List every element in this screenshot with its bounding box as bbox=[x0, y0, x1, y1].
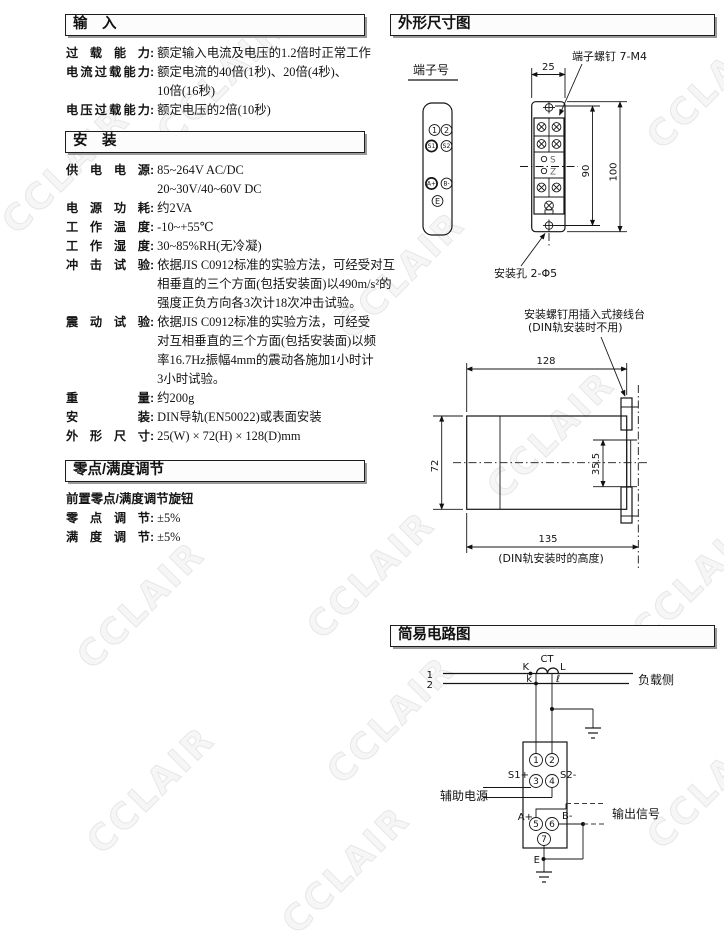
section-title: 输 入 bbox=[73, 16, 117, 32]
spec-value: 约2VA bbox=[157, 199, 192, 218]
terminal-2: 2 bbox=[444, 126, 449, 135]
spec-row-current-overload: 电流过载能力:额定电流的40倍(1秒)、20倍(4秒)、 10倍(16秒) bbox=[66, 63, 365, 101]
section-header-circuit: 简易电路图 bbox=[390, 625, 715, 647]
terminal-circle-3: 3 bbox=[533, 777, 539, 787]
din-height-note: (DIN轨安装时的高度) bbox=[498, 551, 604, 565]
spec-value: 依据JIS C0912标准的实验方法，可经受 对互相垂直的三个方面(包括安装面)… bbox=[157, 313, 376, 389]
terminal-s2: S2 bbox=[443, 143, 451, 150]
colon: : bbox=[150, 389, 154, 408]
spec-value: 25(W) × 72(H) × 128(D)mm bbox=[157, 427, 300, 446]
transducer-terminals: 1 2 3 4 5 6 7 bbox=[530, 754, 559, 846]
spec-row-vibration-test: 震动试验:依据JIS C0912标准的实验方法，可经受 对互相垂直的三个方面(包… bbox=[66, 313, 365, 389]
s1-plus-label: S1+ bbox=[508, 770, 529, 781]
terminal-circle-2: 2 bbox=[549, 756, 555, 766]
spec-value: 85~264V AC/DC 20~30V/40~60V DC bbox=[157, 161, 261, 199]
input-spec-list: 过载能力:额定输入电流及电压的1.2倍时正常工作 电流过载能力:额定电流的40倍… bbox=[66, 44, 365, 120]
adjust-spec-list: 前置零点/满度调节旋钮 零点调节:±5% 满度调节:±5% bbox=[66, 490, 365, 547]
ct-K-label: K bbox=[522, 662, 529, 673]
spec-label: 工作温度 bbox=[66, 218, 150, 237]
spec-label: 电源功耗 bbox=[66, 199, 150, 218]
terminal-circle-7: 7 bbox=[541, 835, 547, 845]
spec-row-operating-humidity: 工作湿度:30~85%RH(无冷凝) bbox=[66, 237, 365, 256]
colon: : bbox=[150, 237, 154, 256]
e-ground-label: E bbox=[534, 855, 540, 866]
mounting-hole-note: 安装孔 2-Φ5 bbox=[494, 266, 557, 280]
side-view: 安装螺钉用插入式接线台 (DIN轨安装时不用) 128 35.5 72 135 … bbox=[430, 307, 648, 570]
terminal-e: E bbox=[435, 197, 440, 206]
zero-adjuster-label: Z bbox=[550, 168, 556, 178]
spec-value: -10~+55℃ bbox=[157, 218, 213, 237]
watermark: CCLAIR bbox=[79, 718, 223, 862]
section-header-input: 输 入 bbox=[65, 14, 365, 36]
front-view: 端子螺钉 7-M4 25 bbox=[494, 50, 647, 280]
spec-row-shock-test: 冲击试验:依据JIS C0912标准的实验方法，可经受对互 相垂直的三个方面(包… bbox=[66, 256, 365, 313]
spec-label: 供电电源 bbox=[66, 161, 150, 199]
a-plus-label: A+ bbox=[518, 812, 533, 823]
terminal-1: 1 bbox=[432, 126, 437, 135]
colon: : bbox=[150, 256, 154, 313]
terminal-a-plus: A+ bbox=[427, 181, 436, 188]
spec-row-span-adjust: 满度调节:±5% bbox=[66, 528, 365, 547]
load-side-label: 负载侧 bbox=[638, 673, 674, 687]
ct-l-label: ℓ bbox=[556, 674, 560, 685]
spec-label: 过载能力 bbox=[66, 44, 150, 63]
dim-width-25: 25 bbox=[542, 62, 555, 73]
spec-label: 工作湿度 bbox=[66, 237, 150, 256]
terminal-screw-icon bbox=[552, 140, 561, 149]
spec-row-outline-size: 外形尺寸:25(W) × 72(H) × 128(D)mm bbox=[66, 427, 365, 446]
section-title: 简易电路图 bbox=[398, 627, 471, 643]
colon: : bbox=[150, 509, 154, 528]
spec-label: 满度调节 bbox=[66, 528, 150, 547]
outline-dimension-diagram: 端子号 1 2 S1 S2 A+ B- E 端子螺钉 7-M4 25 bbox=[385, 42, 724, 632]
section-title: 外形尺寸图 bbox=[398, 16, 471, 32]
terminal-circle-4: 4 bbox=[549, 777, 555, 787]
colon: : bbox=[150, 63, 154, 101]
top-mounting-hole-icon bbox=[543, 102, 555, 114]
terminal-circle-6: 6 bbox=[549, 820, 555, 830]
terminal-s1: S1 bbox=[428, 143, 436, 150]
adjust-note: 前置零点/满度调节旋钮 bbox=[66, 490, 365, 509]
s2-minus-label: S2- bbox=[560, 770, 577, 781]
dim-rail-355: 35.5 bbox=[591, 453, 602, 475]
spec-row-voltage-overload: 电压过载能力:额定电压的2倍(10秒) bbox=[66, 101, 365, 120]
colon: : bbox=[150, 218, 154, 237]
bottom-mounting-hole-icon bbox=[543, 220, 555, 248]
current-transformer: K CT L k ℓ bbox=[522, 654, 566, 685]
colon: : bbox=[150, 199, 154, 218]
dim-height-72: 72 bbox=[430, 460, 441, 473]
install-spec-list: 供电电源:85~264V AC/DC 20~30V/40~60V DC 电源功耗… bbox=[66, 161, 365, 446]
spec-label: 重量 bbox=[66, 389, 150, 408]
terminal-number-legend: 端子号 1 2 S1 S2 A+ B- E bbox=[408, 63, 458, 235]
colon: : bbox=[150, 313, 154, 389]
spec-value: DIN导轨(EN50022)或表面安装 bbox=[157, 408, 322, 427]
section-title: 安 装 bbox=[73, 133, 117, 149]
spec-value: ±5% bbox=[157, 509, 180, 528]
aux-power-label: 辅助电源 bbox=[440, 789, 488, 803]
watermark: CCLAIR bbox=[69, 533, 213, 677]
ct-k-label: k bbox=[526, 674, 532, 685]
terminal-circle-1: 1 bbox=[533, 756, 539, 766]
left-column: 输 入 过载能力:额定输入电流及电压的1.2倍时正常工作 电流过载能力:额定电流… bbox=[65, 14, 365, 547]
terminal-screw-icon bbox=[537, 123, 546, 132]
dim-height-100: 100 bbox=[609, 162, 620, 181]
span-adjuster-label: S bbox=[550, 156, 556, 166]
b-minus-label: B- bbox=[562, 811, 573, 822]
spec-label: 安装 bbox=[66, 408, 150, 427]
terminal-no-label: 端子号 bbox=[413, 63, 449, 77]
spec-value: 依据JIS C0912标准的实验方法，可经受对互 相垂直的三个方面(包括安装面)… bbox=[157, 256, 395, 313]
spec-row-weight: 重量:约200g bbox=[66, 389, 365, 408]
terminal-screw-icon bbox=[552, 183, 561, 192]
ground-symbol bbox=[536, 872, 552, 882]
section-header-dimensions: 外形尺寸图 bbox=[390, 14, 715, 36]
colon: : bbox=[150, 408, 154, 427]
section-header-install: 安 装 bbox=[65, 131, 365, 153]
terminal-screw-icon bbox=[545, 201, 554, 214]
ct-label: CT bbox=[540, 654, 554, 665]
spec-value: 额定输入电流及电压的1.2倍时正常工作 bbox=[157, 44, 371, 63]
dim-height-90: 90 bbox=[581, 165, 592, 178]
ground-symbol bbox=[585, 728, 601, 738]
dim-depth-128: 128 bbox=[536, 356, 555, 367]
spec-row-power-supply: 供电电源:85~264V AC/DC 20~30V/40~60V DC bbox=[66, 161, 365, 199]
colon: : bbox=[150, 101, 154, 120]
spec-value: ±5% bbox=[157, 528, 180, 547]
spec-label: 冲击试验 bbox=[66, 256, 150, 313]
terminal-circle-5: 5 bbox=[533, 820, 539, 830]
spec-label: 外形尺寸 bbox=[66, 427, 150, 446]
spec-row-operating-temp: 工作温度:-10~+55℃ bbox=[66, 218, 365, 237]
output-signal-label: 输出信号 bbox=[612, 806, 660, 821]
terminal-screw-icon bbox=[537, 140, 546, 149]
terminal-screw-note: 端子螺钉 7-M4 bbox=[572, 50, 647, 63]
spec-value: 额定电压的2倍(10秒) bbox=[157, 101, 271, 120]
colon: : bbox=[150, 427, 154, 446]
plug-terminal-note-2: (DIN轨安装时不用) bbox=[528, 320, 623, 334]
spec-value: 额定电流的40倍(1秒)、20倍(4秒)、 10倍(16秒) bbox=[157, 63, 347, 101]
spec-value: 30~85%RH(无冷凝) bbox=[157, 237, 261, 256]
ct-L-label: L bbox=[560, 662, 566, 673]
section-header-adjust: 零点/满度调节 bbox=[65, 460, 365, 482]
plug-terminal-note-1: 安装螺钉用插入式接线台 bbox=[524, 307, 645, 321]
colon: : bbox=[150, 528, 154, 547]
colon: : bbox=[150, 44, 154, 63]
spec-label: 电压过载能力 bbox=[66, 101, 150, 120]
section-title: 零点/满度调节 bbox=[73, 462, 164, 478]
terminal-screw-icon bbox=[537, 183, 546, 192]
ct-coil-icon bbox=[537, 668, 559, 673]
spec-row-mounting: 安装:DIN导轨(EN50022)或表面安装 bbox=[66, 408, 365, 427]
dim-height-135: 135 bbox=[538, 534, 557, 545]
spec-row-power-consumption: 电源功耗:约2VA bbox=[66, 199, 365, 218]
colon: : bbox=[150, 161, 154, 199]
spec-row-zero-adjust: 零点调节:±5% bbox=[66, 509, 365, 528]
simple-circuit-diagram: 1 2 负载侧 K CT L k ℓ 1 2 3 4 5 6 7 S bbox=[385, 650, 724, 893]
spec-row-overload: 过载能力:额定输入电流及电压的1.2倍时正常工作 bbox=[66, 44, 365, 63]
terminal-b-minus: B- bbox=[443, 181, 449, 188]
terminal-screw-icon bbox=[552, 123, 561, 132]
spec-label: 电流过载能力 bbox=[66, 63, 150, 101]
phase-2-label: 2 bbox=[427, 680, 433, 691]
spec-label: 震动试验 bbox=[66, 313, 150, 389]
spec-value: 约200g bbox=[157, 389, 194, 408]
spec-label: 零点调节 bbox=[66, 509, 150, 528]
